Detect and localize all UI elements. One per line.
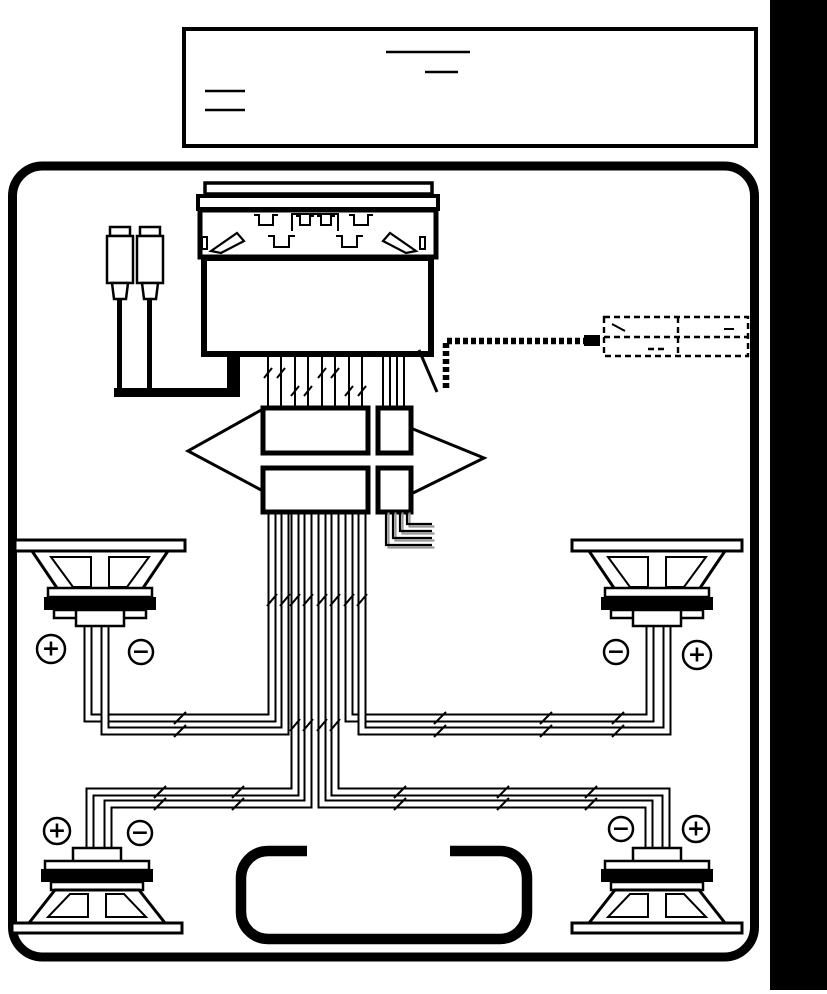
- speaker-flange: [572, 540, 742, 551]
- terminal-plus: +: [683, 816, 709, 842]
- head-unit-body: [204, 258, 431, 354]
- scan-margin-bar: [770, 0, 827, 990]
- connector-lower-aux: [378, 468, 411, 512]
- rca-cable-run: [114, 388, 240, 397]
- speaker-terminal-block: [633, 610, 681, 626]
- harness-wires: [264, 352, 404, 410]
- speaker-flange: [12, 923, 182, 933]
- speaker-terminal-block: [76, 610, 124, 626]
- terminal-minus: −: [609, 817, 633, 842]
- rca-cable-riser: [227, 352, 240, 396]
- plus-icon: +: [42, 637, 60, 662]
- connector-upper-aux: [378, 408, 411, 453]
- speaker-rear-right: − +: [572, 816, 742, 933]
- connector-lower-main: [263, 468, 368, 512]
- note-box: [184, 29, 756, 146]
- rca-plug-right: [137, 227, 163, 299]
- wire-twist-marks: [154, 594, 624, 810]
- plus-icon: +: [687, 817, 705, 842]
- terminal-minus: −: [129, 640, 153, 665]
- speaker-cone: [589, 890, 725, 923]
- terminal-plus: +: [44, 818, 70, 844]
- minus-icon: −: [612, 817, 630, 842]
- connector-upper-main: [263, 408, 368, 453]
- head-unit-top-trim-1: [205, 183, 432, 194]
- speaker-magnet: [601, 597, 713, 610]
- speaker-rear-left: + −: [12, 818, 182, 933]
- plus-icon: +: [48, 819, 66, 844]
- rca-plug-left: [107, 227, 133, 299]
- terminal-minus: −: [128, 821, 152, 846]
- terminal-plus: +: [37, 635, 65, 663]
- connection-arrow-right: [413, 429, 484, 493]
- speaker-front-left: + −: [15, 540, 185, 665]
- speaker-cone: [29, 890, 165, 923]
- speaker-flange: [572, 923, 742, 933]
- terminal-plus: +: [683, 641, 711, 669]
- connection-arrow-left: [188, 409, 263, 491]
- minus-icon: −: [131, 821, 149, 846]
- head-unit-top-trim-2: [198, 196, 438, 209]
- manual-page: + − − +: [0, 0, 827, 994]
- head-unit: [198, 183, 438, 354]
- speaker-magnet: [41, 869, 153, 882]
- antenna-lead: [419, 317, 748, 392]
- note-box-frame: [184, 29, 756, 146]
- minus-icon: −: [607, 640, 625, 665]
- speaker-magnet: [601, 869, 713, 882]
- antenna-wire: [446, 341, 584, 388]
- speaker-front-right: − +: [572, 540, 742, 669]
- speaker-magnet: [44, 597, 156, 610]
- plus-icon: +: [688, 643, 706, 668]
- antenna-plug: [584, 335, 600, 346]
- speaker-flange: [15, 540, 185, 551]
- aux-lead-wires: [386, 510, 435, 548]
- speaker-wiring: [88, 512, 667, 858]
- terminal-minus: −: [604, 640, 628, 665]
- antenna-socket-outline: [604, 317, 748, 356]
- minus-icon: −: [132, 640, 150, 665]
- bottom-label-box: [241, 843, 527, 939]
